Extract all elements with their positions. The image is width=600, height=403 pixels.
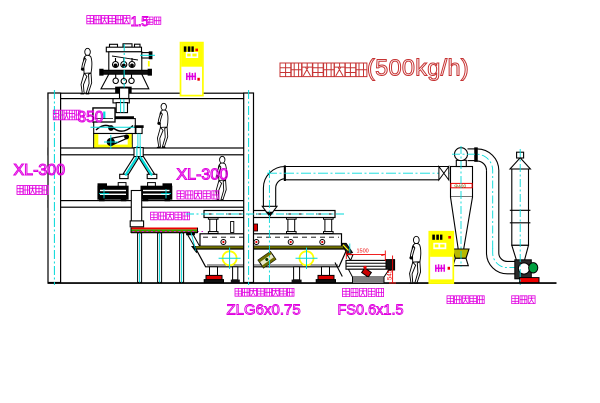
svg-text:1500: 1500 [357,249,369,255]
svg-text:350: 350 [78,109,104,126]
svg-text:ZLG6x0.75: ZLG6x0.75 [227,302,301,319]
svg-text:545: 545 [387,269,393,280]
svg-text:(500kg/h): (500kg/h) [367,55,469,81]
svg-text:FS0.6x1.5: FS0.6x1.5 [338,303,404,319]
svg-text:XL-300: XL-300 [177,167,229,184]
svg-text:Φ400: Φ400 [454,184,466,190]
svg-text:XL-300: XL-300 [14,162,66,179]
